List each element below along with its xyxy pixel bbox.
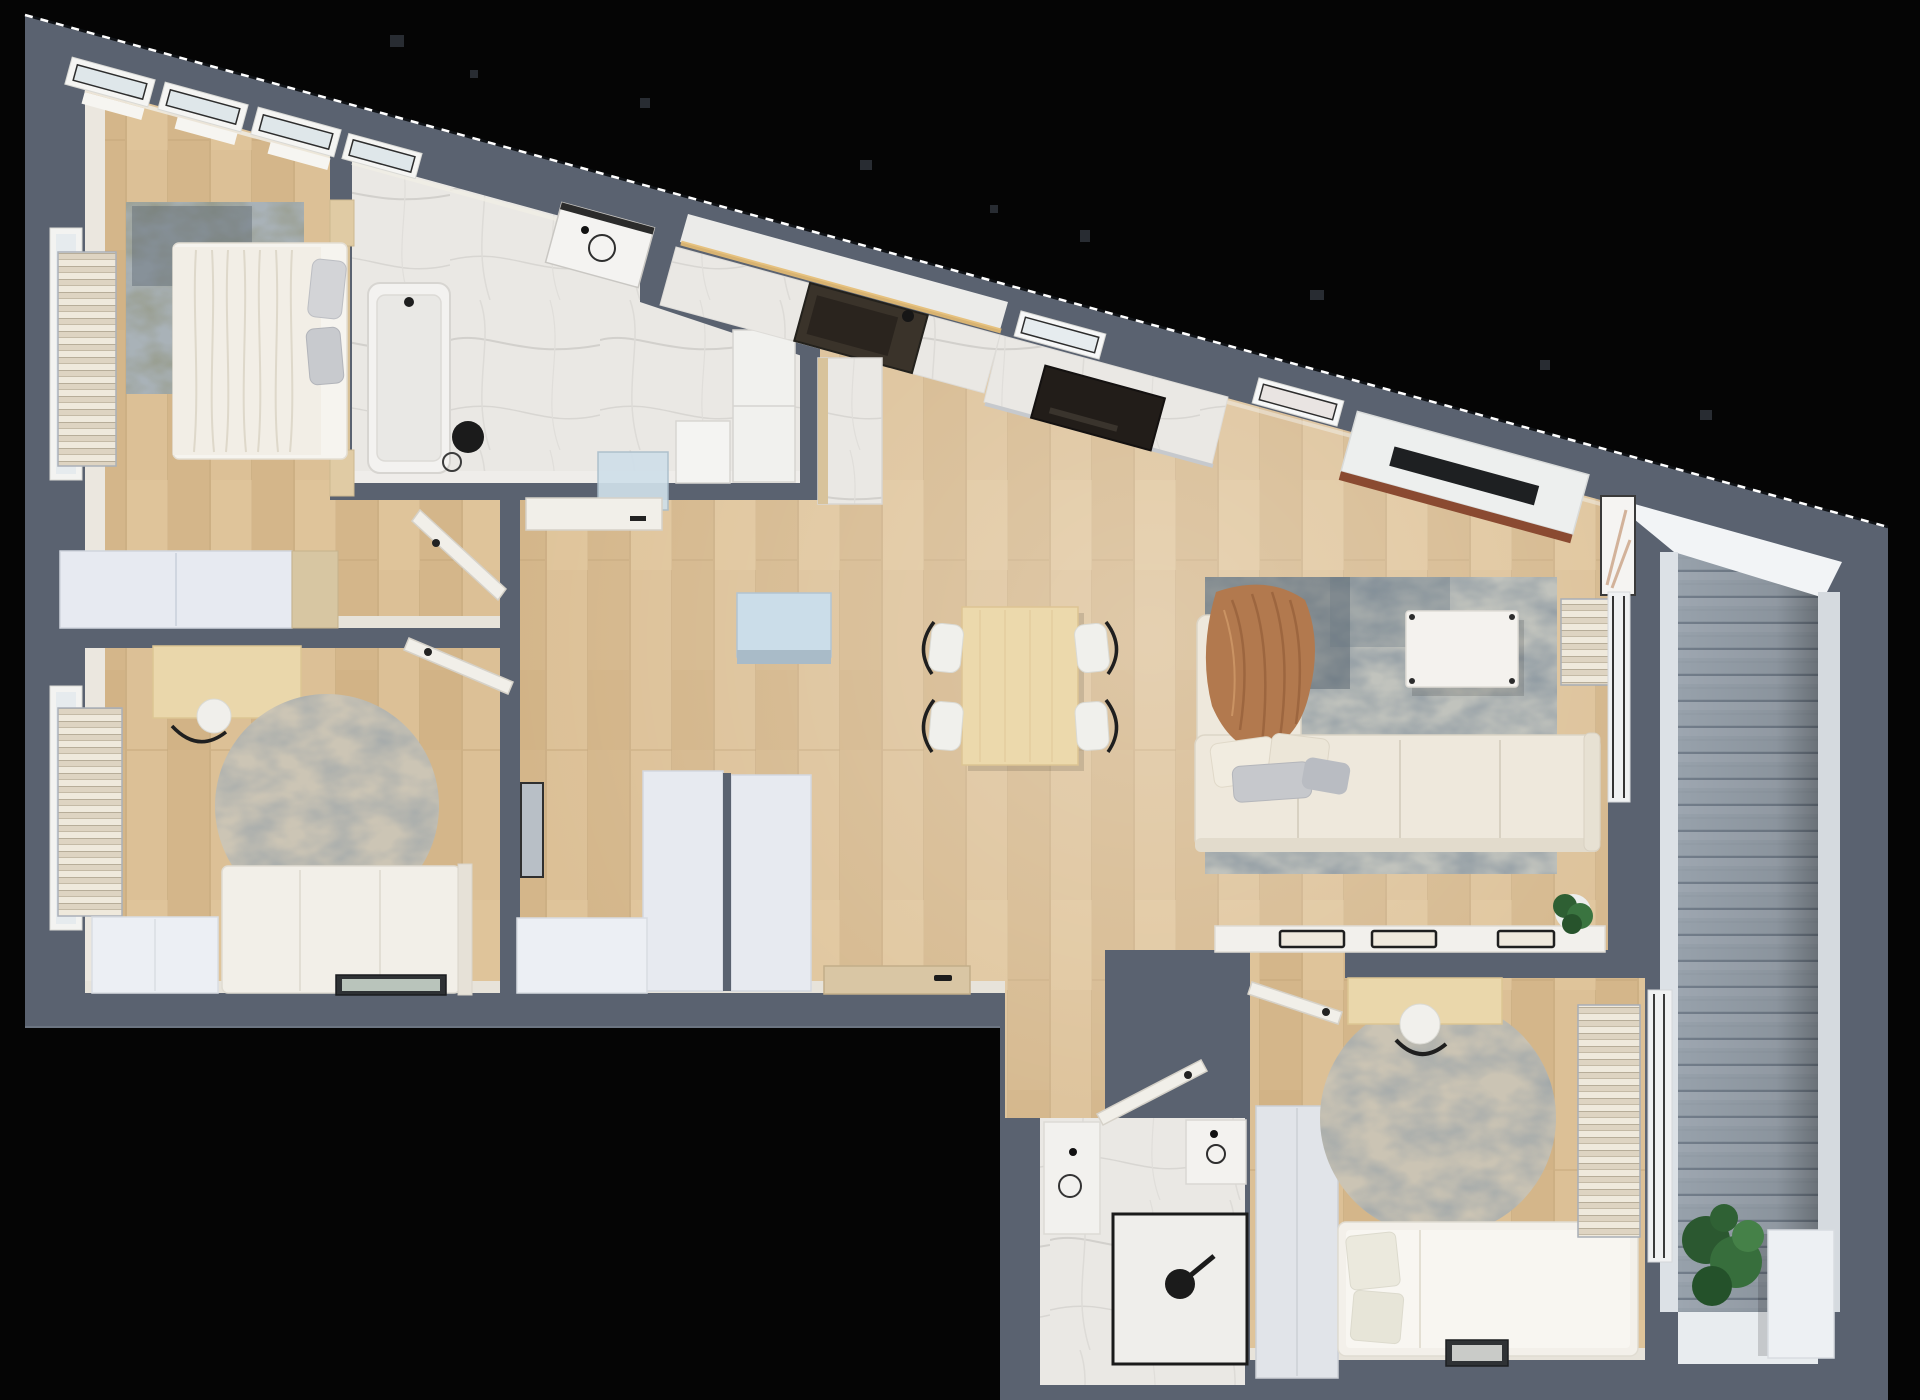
bathroom2-vanity — [1044, 1122, 1100, 1234]
bathroom1-door — [526, 498, 662, 530]
jpeg-artifact-5 — [1310, 290, 1324, 300]
living-side-window — [1608, 592, 1630, 802]
bathroom2-sink — [1186, 1120, 1246, 1184]
bedroom2-door-handle — [424, 648, 432, 656]
kitchen-faucet — [902, 310, 914, 322]
hall-blue-cabinet — [737, 593, 831, 657]
bedroom2-radiator — [58, 708, 122, 916]
balcony-plant-leaf3 — [1692, 1266, 1732, 1306]
sofa-backrest — [1195, 838, 1600, 852]
balcony-deck-shade — [1678, 553, 1818, 1312]
bedroom1-pillow-2 — [306, 327, 345, 386]
bathroom2-door-handle — [1184, 1071, 1192, 1079]
coffee-table-leg4 — [1509, 678, 1515, 684]
hall-bench — [517, 918, 647, 993]
coffee-table-leg3 — [1409, 678, 1415, 684]
kitchen-column-wood-edge — [818, 358, 828, 504]
bathtub-inner — [377, 295, 441, 461]
bedroom3-chair-seat — [1400, 1004, 1440, 1044]
sofa-armrest — [1584, 733, 1600, 851]
balcony-bench — [1768, 1230, 1834, 1358]
bedroom1-nightstand-top — [330, 200, 354, 246]
dining-chair-l1-seat — [928, 622, 965, 673]
jpeg-artifact-4 — [1080, 230, 1090, 242]
entry-door-handle — [934, 975, 952, 981]
console-tray-1 — [1280, 931, 1344, 947]
bedroom2-headboard — [458, 864, 472, 995]
bedroom3-side-window — [1648, 990, 1672, 1262]
jpeg-artifact-6 — [1540, 360, 1550, 370]
bathroom1-faucet — [581, 226, 589, 234]
dining-chair-r2-seat — [1074, 701, 1109, 751]
sofa-pillow-gray — [1232, 761, 1312, 802]
dining-chair-l2-seat — [928, 701, 964, 752]
hall-blue-cabinet-side — [737, 650, 831, 664]
balcony-plant-leaf5 — [1710, 1204, 1738, 1232]
console-plant-leaf3 — [1562, 914, 1582, 934]
bathroom1-washer — [676, 421, 730, 483]
coffee-table-leg2 — [1509, 614, 1515, 620]
bedroom2-bed — [222, 866, 460, 993]
balcony-plant-leaf4 — [1732, 1220, 1764, 1252]
bedroom3-pillow1 — [1345, 1232, 1400, 1291]
bedroom2-picture-inner — [342, 979, 440, 991]
bathroom1-stool — [452, 421, 484, 453]
bathroom2-vanity-faucet — [1069, 1148, 1077, 1156]
dining-chair-r1-seat — [1074, 622, 1111, 673]
coffee-table — [1406, 611, 1518, 687]
jpeg-artifact-9 — [1700, 410, 1712, 420]
living-radiator — [1561, 599, 1615, 685]
jpeg-artifact-3 — [860, 160, 872, 170]
hall-mirror — [521, 783, 543, 877]
jpeg-artifact-8 — [990, 205, 998, 213]
console-tray-2 — [1372, 931, 1436, 947]
bathroom1-door-handle — [630, 516, 646, 521]
bathtub-faucet — [404, 297, 414, 307]
bedroom3-doorway-floor — [1250, 950, 1345, 980]
bedroom1-pillow-1 — [307, 258, 347, 319]
jpeg-artifact-7 — [470, 70, 478, 78]
floor-plan — [0, 0, 1920, 1400]
jpeg-artifact-2 — [640, 98, 650, 108]
bedroom1-door-handle — [432, 539, 440, 547]
bedroom3-rug-mottle — [1320, 1000, 1556, 1236]
bedroom1-radiator — [58, 252, 116, 466]
balcony-right-wall — [1818, 592, 1840, 1312]
bedroom3-door-handle — [1322, 1008, 1330, 1016]
bathroom2-sink-faucet — [1210, 1130, 1218, 1138]
jpeg-artifact-1 — [390, 35, 404, 47]
hall-wardrobe-1 — [643, 771, 723, 991]
bedroom3-radiator — [1578, 1005, 1640, 1237]
console-tray-3 — [1498, 931, 1554, 947]
coffee-table-leg1 — [1409, 614, 1415, 620]
hall-wardrobe-2 — [731, 775, 811, 991]
bedroom3-pillow2 — [1350, 1290, 1404, 1344]
floor-plan-canvas — [0, 0, 1920, 1400]
bedroom3-floor-mat-inner — [1452, 1345, 1502, 1361]
bedroom2-chair-seat — [197, 699, 231, 733]
bedroom1-wardrobe — [292, 551, 338, 628]
